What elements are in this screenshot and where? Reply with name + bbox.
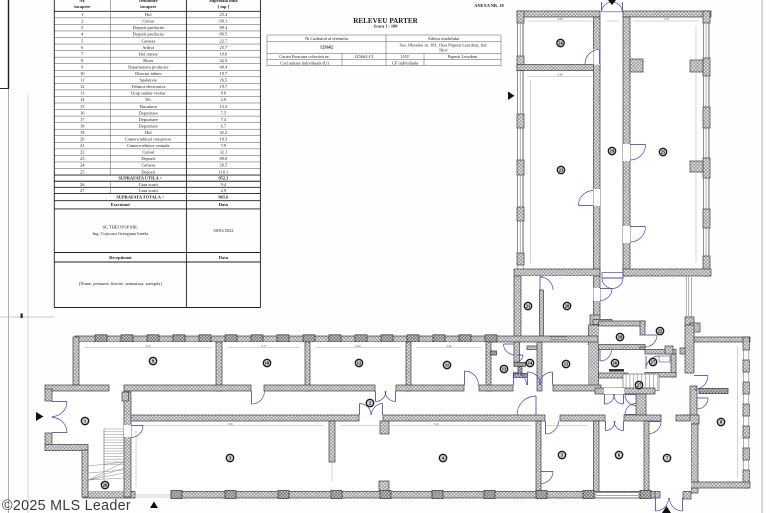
svg-text:7.10: 7.10 [663,17,669,21]
svg-text:25.7: 25.7 [220,45,228,50]
svg-text:2.9: 2.9 [221,188,227,193]
svg-text:2.9: 2.9 [221,97,227,102]
svg-text:7.9: 7.9 [221,143,227,148]
svg-text:4.77: 4.77 [145,344,151,348]
svg-text:Nr.Cadastral al terenului: Nr.Cadastral al terenului [305,36,349,41]
svg-text:SUPRAFATA TOTALA =: SUPRAFATA TOTALA = [116,194,164,199]
svg-text:Scara 1 : 100: Scara 1 : 100 [374,24,398,29]
svg-text:Cartea Funciara colectiva nr.: Cartea Funciara colectiva nr. [279,54,329,59]
svg-text:19.7: 19.7 [220,71,228,76]
svg-text:Tehnica electronica: Tehnica electronica [131,84,165,89]
svg-text:42.5: 42.5 [220,58,228,63]
svg-text:19.0: 19.0 [220,51,228,56]
svg-text:89.4: 89.4 [220,25,228,30]
svg-text:Cod unitate individuala (U): Cod unitate individuala (U) [280,60,329,65]
svg-text:Adresa imobilului: Adresa imobilului [428,36,461,41]
svg-text:89.0: 89.0 [220,156,228,161]
svg-text:2.77: 2.77 [261,344,267,348]
svg-text:incapere: incapere [140,4,156,9]
svg-text:13.3: 13.3 [220,104,228,109]
svg-text:24: 24 [558,41,563,46]
svg-text:SUPRAFATA UTILA =: SUPRAFATA UTILA = [118,176,162,181]
svg-text:Nr.: Nr. [79,0,85,3]
svg-text:25.4: 25.4 [220,12,228,17]
svg-text:6.7: 6.7 [221,123,227,128]
svg-text:Arhiva: Arhiva [142,45,154,50]
svg-text:7.40: 7.40 [227,422,233,426]
svg-text:Spalatorie: Spalatorie [139,78,157,83]
svg-text:7.10: 7.10 [433,422,439,426]
svg-text:20: 20 [565,304,570,309]
svg-text:Casa scarii: Casa scarii [139,182,159,187]
svg-text:[ mp ]: [ mp ] [218,4,230,9]
svg-text:26.5: 26.5 [220,163,228,168]
svg-text:6.58: 6.58 [557,17,563,21]
svg-text:12: 12 [80,84,84,89]
svg-text:45.2: 45.2 [220,130,228,135]
svg-text:21: 21 [526,304,531,309]
svg-text:10: 10 [265,361,270,366]
svg-text:25: 25 [661,150,666,155]
svg-text:Depozitare: Depozitare [139,117,158,122]
svg-text:Popesti Leordeni: Popesti Leordeni [448,54,479,59]
svg-text:CF individuala: CF individuala [392,60,418,65]
svg-text:7.5: 7.5 [221,110,227,115]
svg-text:ANEXA NR. 18: ANEXA NR. 18 [474,3,504,8]
svg-text:17: 17 [651,360,656,365]
svg-text:9.4: 9.4 [221,182,227,187]
svg-text:incapere: incapere [74,4,90,9]
svg-text:89.5: 89.5 [220,32,228,37]
svg-text:Denumire: Denumire [139,0,158,3]
svg-text:40.4: 40.4 [220,64,228,69]
svg-text:15: 15 [564,362,569,367]
svg-text:32.1: 32.1 [220,150,228,155]
svg-text:Depozit productie: Depozit productie [133,32,165,37]
svg-text:Data: Data [219,255,229,260]
svg-text:Departament productie: Departament productie [128,64,168,69]
svg-text:13: 13 [502,367,507,372]
svg-text:UAT: UAT [401,54,410,59]
svg-text:Depozitare: Depozitare [139,110,158,115]
svg-text:Ing. Cojocaru Georgiana Ionela: Ing. Cojocaru Georgiana Ionela [93,231,149,236]
svg-text:7.4: 7.4 [221,117,227,122]
svg-text:16: 16 [613,361,618,366]
svg-text:Camera tabloul compresor: Camera tabloul compresor [125,137,172,142]
svg-text:27: 27 [637,383,642,388]
svg-text:8.0: 8.0 [221,91,227,96]
svg-text:1: 1 [81,12,83,17]
svg-text:Casa scarii: Casa scarii [139,188,159,193]
svg-text:08/03/2022: 08/03/2022 [213,228,233,233]
svg-text:Hol: Hol [145,130,152,135]
svg-text:Director tehnic: Director tehnic [135,71,162,76]
svg-text:©2025 MLS Leader: ©2025 MLS Leader [2,498,131,513]
svg-text:125662: 125662 [320,45,333,50]
svg-text:14: 14 [528,361,533,366]
svg-text:Depozit: Depozit [141,169,156,174]
svg-text:12: 12 [357,361,362,366]
svg-text:Executant: Executant [111,202,131,207]
svg-text:19: 19 [610,149,615,154]
svg-text:26: 26 [103,483,108,488]
svg-text:Wc: Wc [145,97,151,102]
svg-text:19.3: 19.3 [220,137,228,142]
svg-text:23: 23 [559,168,564,173]
svg-text:26.5: 26.5 [220,78,228,83]
svg-text:Camera: Camera [141,163,155,168]
svg-text:22: 22 [80,150,84,155]
svg-text:6.58: 6.58 [557,73,563,77]
svg-text:3.20: 3.20 [355,344,361,348]
svg-text:125662-C1: 125662-C1 [354,54,374,59]
svg-text:22.7: 22.7 [220,38,228,43]
svg-text:21: 21 [80,143,84,148]
svg-text:2: 2 [81,19,83,24]
svg-text:SC THEOTOP SRL: SC THEOTOP SRL [103,225,139,230]
svg-text:952.3: 952.3 [218,176,229,181]
svg-text:110.1: 110.1 [219,169,229,174]
svg-text:18: 18 [618,335,623,340]
svg-text:19.7: 19.7 [220,84,228,89]
svg-text:Depozit productie: Depozit productie [133,25,165,30]
svg-text:Grup sanitar vestiar: Grup sanitar vestiar [131,91,166,96]
svg-text:Camera tehnica centrala: Camera tehnica centrala [127,143,169,148]
svg-text:Hol intrare: Hol intrare [139,51,158,56]
svg-text:Depozitare: Depozitare [139,123,158,128]
svg-text:Culoar: Culoar [142,150,154,155]
svg-text:Hol: Hol [145,12,152,17]
svg-text:Data: Data [219,202,229,207]
svg-text:22: 22 [658,329,663,334]
svg-text:Bucataria: Bucataria [140,104,157,109]
svg-text:Ilfov: Ilfov [439,48,448,53]
svg-text:Depozit: Depozit [141,156,156,161]
svg-text:965.6: 965.6 [218,194,229,199]
svg-text:11: 11 [80,78,84,83]
svg-text:11: 11 [445,363,450,368]
svg-text:Suprafata utila: Suprafata utila [209,0,238,3]
svg-text:Culoar: Culoar [142,19,154,24]
svg-text:Birou: Birou [143,58,154,63]
svg-text:2.42: 2.42 [446,344,452,348]
svg-text:Receptionat: Receptionat [109,255,132,260]
svg-text:Camera: Camera [141,38,155,43]
svg-text:69.1: 69.1 [220,19,228,24]
